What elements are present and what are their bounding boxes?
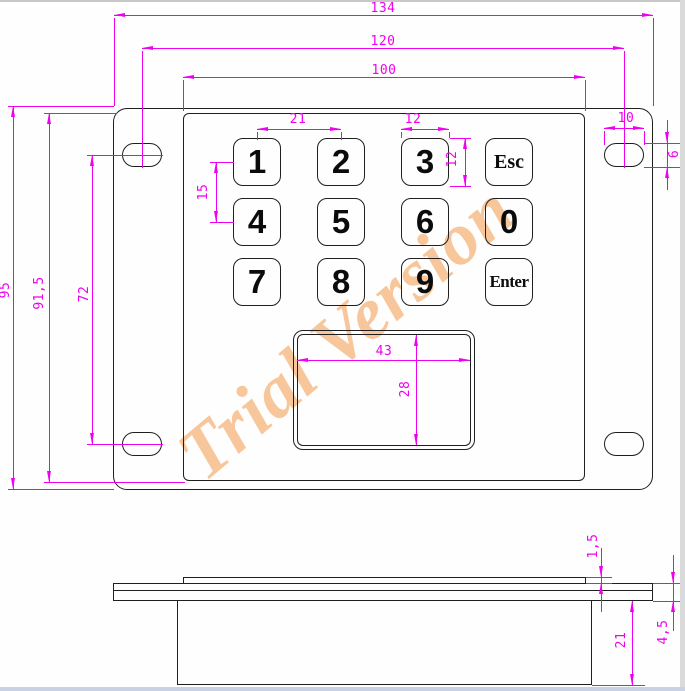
dim-key-pitch-x-label: 21 — [268, 112, 328, 128]
key-label: 3 — [416, 143, 434, 181]
side-view-panel-plate-line — [114, 590, 652, 591]
key-label: 1 — [248, 143, 266, 181]
dim-arrow — [297, 358, 308, 362]
extension-line — [114, 18, 115, 106]
key-0: 0 — [485, 198, 533, 246]
extension-line — [585, 80, 586, 111]
extension-line — [210, 222, 234, 223]
dim-arrow — [330, 127, 341, 131]
extension-line — [604, 131, 605, 145]
key-label: 6 — [416, 203, 434, 241]
extension-line — [44, 482, 185, 483]
dim-face-height-line — [49, 113, 50, 482]
dim-touchpad-width-label: 43 — [354, 344, 414, 360]
extension-line — [401, 132, 402, 138]
dim-key-pitch-x-line — [257, 129, 341, 130]
dim-arrow — [630, 674, 634, 685]
extension-line — [142, 51, 143, 168]
dim-enclosure-depth-label: 21 — [614, 610, 630, 670]
extension-line — [341, 132, 342, 140]
dim-plate-thickness-label: 4,5 — [656, 602, 672, 662]
dim-hole-span-height-label: 72 — [77, 264, 93, 324]
dim-arrow — [47, 471, 51, 482]
dim-arrow — [463, 138, 467, 149]
extension-line — [183, 80, 184, 111]
extension-line — [210, 162, 234, 163]
extension-line — [87, 155, 163, 156]
key-8: 8 — [317, 258, 365, 306]
key-label: Esc — [494, 151, 524, 174]
window-edge-top — [0, 0, 685, 2]
dim-arrow — [214, 162, 218, 173]
dim-enclosure-depth-line — [632, 601, 633, 685]
dim-overall-width-label: 134 — [353, 1, 413, 17]
dim-arrow — [574, 75, 585, 79]
window-edge-right — [680, 0, 685, 691]
dim-plate-thickness-line — [673, 555, 674, 631]
dim-touchpad-width-line — [297, 360, 470, 361]
extension-line — [586, 583, 612, 584]
dim-face-height-label: 91,5 — [32, 263, 48, 323]
extension-line — [8, 106, 114, 107]
window-edge-bottom — [0, 687, 685, 691]
key-7: 7 — [233, 258, 281, 306]
extension-line — [592, 685, 645, 686]
dim-key-height-label: 12 — [445, 129, 461, 189]
extension-line — [624, 51, 625, 168]
side-view-panel-plate — [113, 583, 653, 601]
dim-key-pitch-y-label: 15 — [196, 162, 212, 222]
key-6: 6 — [401, 198, 449, 246]
dim-arrow — [257, 127, 268, 131]
dim-hole-span-width-label: 120 — [353, 34, 413, 50]
key-1: 1 — [233, 138, 281, 186]
dim-face-width-label: 100 — [354, 63, 414, 79]
dim-arrow — [90, 155, 94, 166]
key-label: 9 — [416, 263, 434, 301]
dim-arrow — [459, 358, 470, 362]
key-label: 4 — [248, 203, 266, 241]
dim-arrow — [114, 13, 125, 17]
extension-line — [586, 577, 612, 578]
key-4: 4 — [233, 198, 281, 246]
dim-key-width-label: 12 — [383, 112, 443, 128]
dim-arrow — [142, 46, 153, 50]
dim-arrow — [183, 75, 194, 79]
key-label: Enter — [489, 272, 528, 292]
dim-arrow — [599, 583, 603, 594]
key-label: 0 — [500, 203, 518, 241]
dim-arrow — [630, 601, 634, 612]
key-enter: Enter — [485, 258, 533, 306]
dim-arrow — [90, 433, 94, 444]
extension-line — [8, 489, 114, 490]
extension-line — [44, 113, 117, 114]
dim-arrow — [414, 335, 418, 346]
extension-line — [653, 18, 654, 106]
key-2: 2 — [317, 138, 365, 186]
dim-face-thickness-label: 1,5 — [586, 516, 602, 576]
dim-arrow — [613, 46, 624, 50]
key-label: 2 — [332, 143, 350, 181]
dim-arrow — [11, 106, 15, 117]
dim-arrow — [671, 572, 675, 583]
dim-touchpad-height-label: 28 — [398, 359, 414, 419]
key-label: 5 — [332, 203, 350, 241]
drawing-canvas: Trial Version 1 2 3 Esc 4 5 6 0 7 8 9 En… — [0, 0, 685, 691]
dim-arrow — [47, 113, 51, 124]
key-5: 5 — [317, 198, 365, 246]
dim-arrow — [642, 13, 653, 17]
key-esc: Esc — [485, 138, 533, 186]
key-3: 3 — [401, 138, 449, 186]
dim-arrow — [214, 211, 218, 222]
dim-arrow — [11, 478, 15, 489]
extension-line — [87, 444, 163, 445]
dim-overall-height-label: 95 — [0, 260, 14, 320]
side-view-enclosure — [177, 600, 592, 685]
dim-hole-width-label: 10 — [596, 111, 656, 127]
key-9: 9 — [401, 258, 449, 306]
dim-arrow — [463, 175, 467, 186]
key-label: 8 — [332, 263, 350, 301]
extension-line — [257, 132, 258, 140]
dim-touchpad-height-line — [416, 335, 417, 445]
key-label: 7 — [248, 263, 266, 301]
mount-hole-bottom-right — [604, 432, 644, 456]
dim-arrow — [414, 434, 418, 445]
